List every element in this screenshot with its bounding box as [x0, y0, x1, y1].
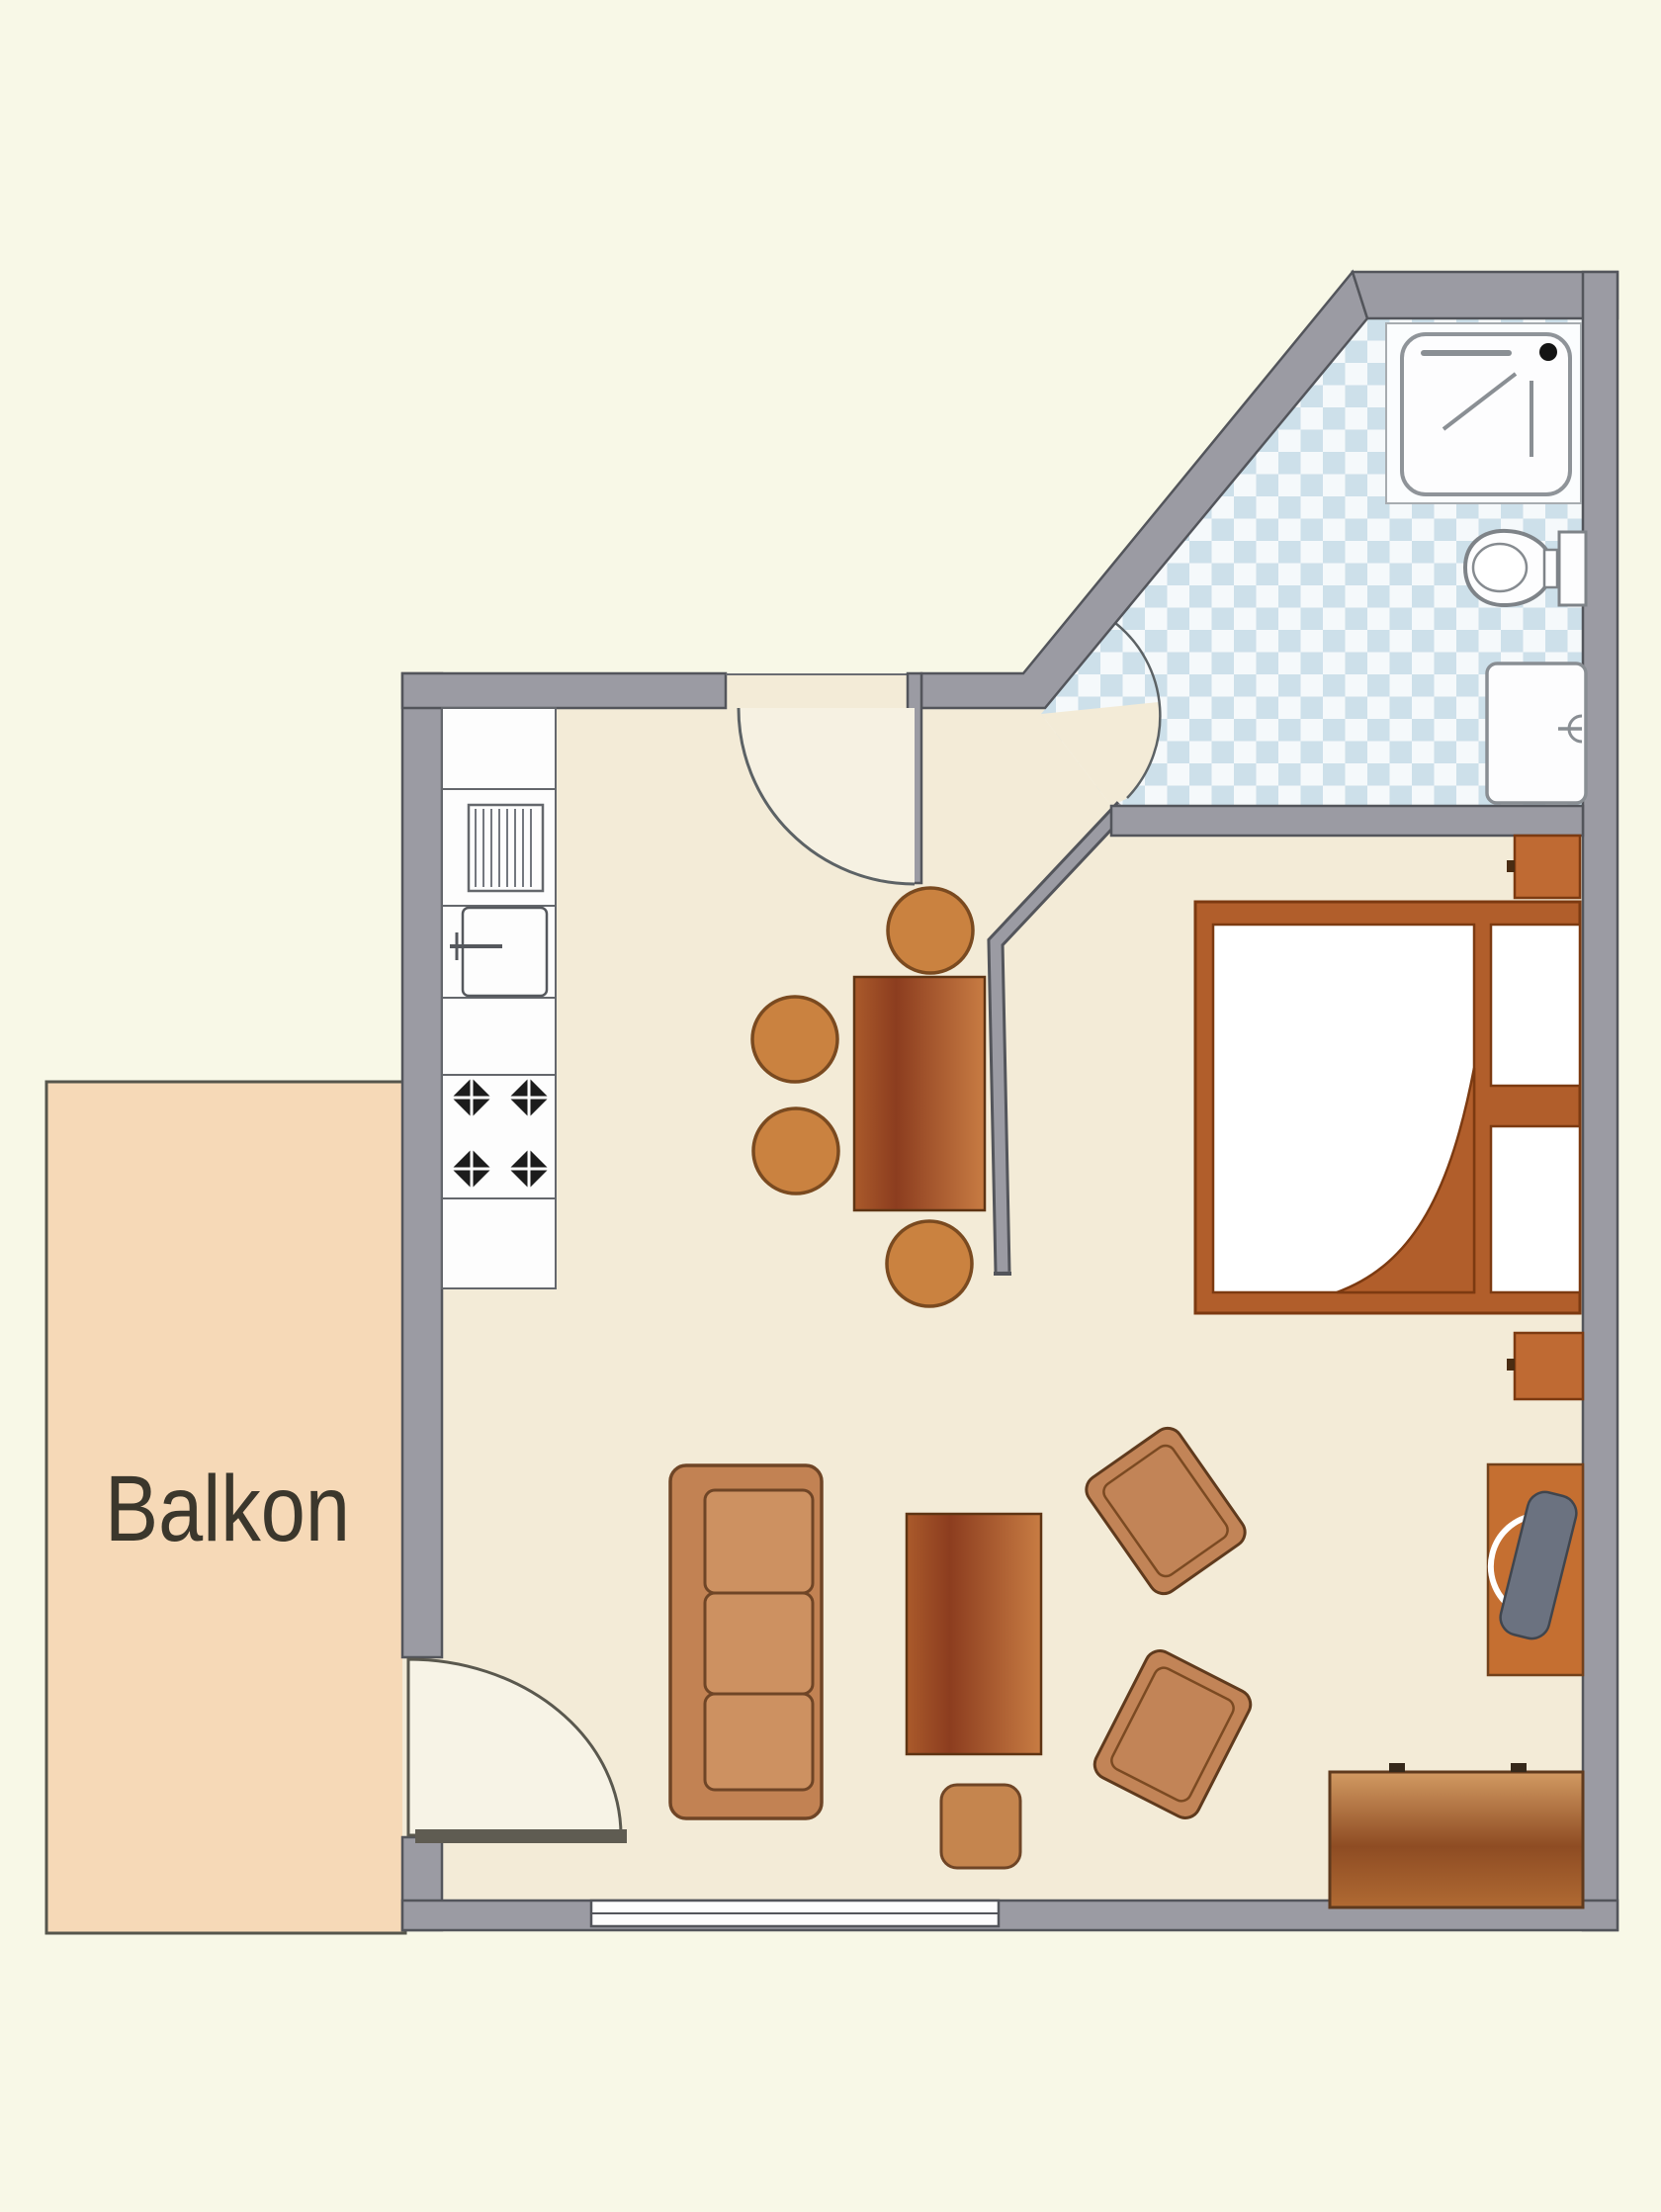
svg-text:Balkon: Balkon: [105, 1457, 350, 1561]
